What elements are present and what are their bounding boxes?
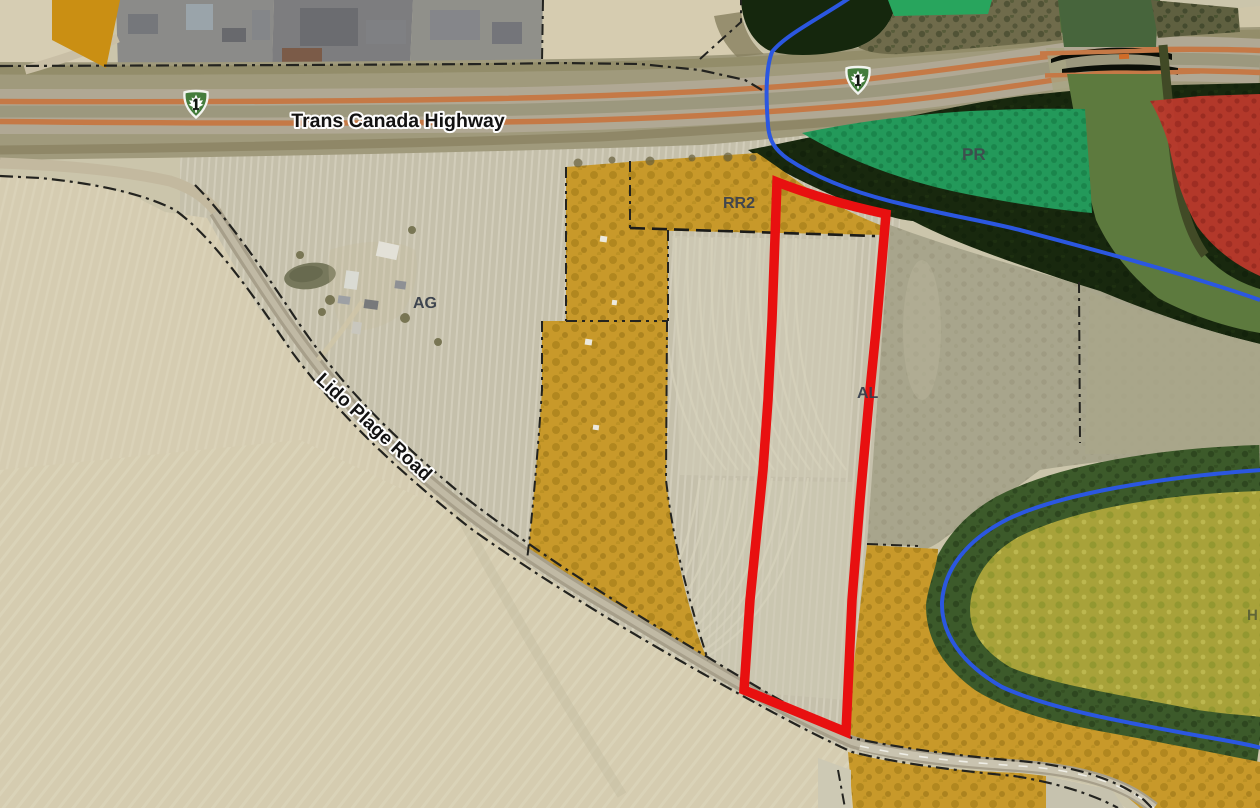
svg-text:H: H <box>1247 607 1258 624</box>
svg-text:RR2: RR2 <box>723 195 755 212</box>
svg-text:PR: PR <box>962 145 986 164</box>
svg-text:Trans Canada Highway: Trans Canada Highway <box>291 110 505 132</box>
svg-text:AL: AL <box>857 385 879 402</box>
svg-text:AG: AG <box>413 295 437 312</box>
